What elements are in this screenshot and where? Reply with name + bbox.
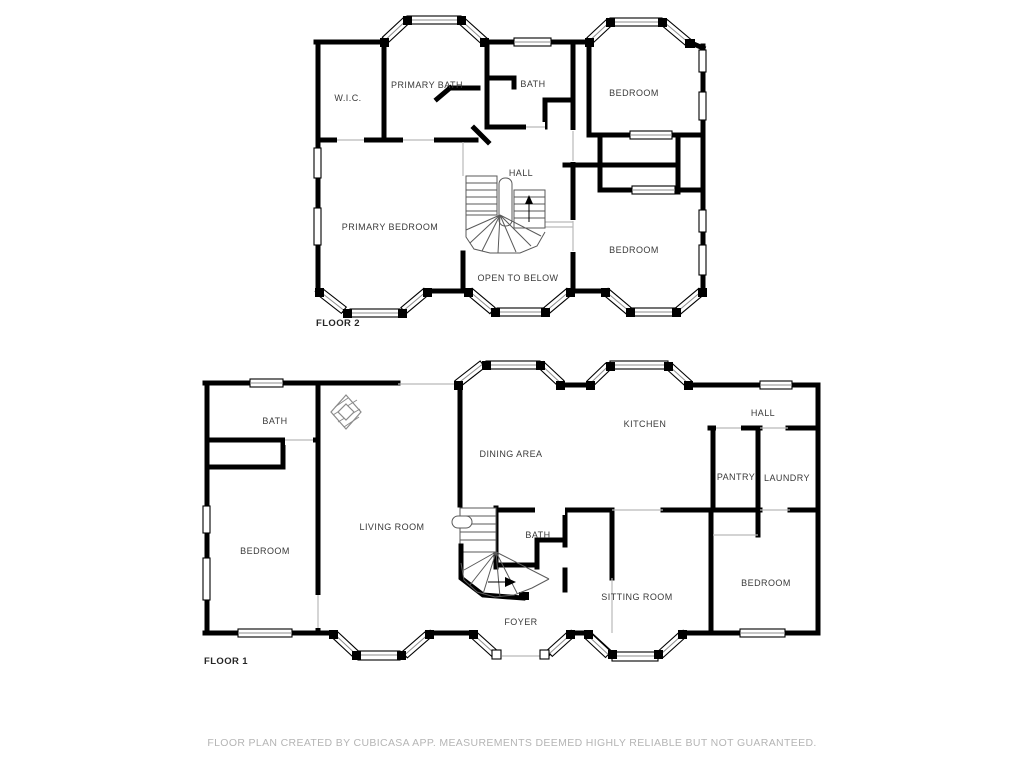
staircase-floor2 bbox=[466, 176, 545, 253]
room-label-foyer: FOYER bbox=[504, 617, 537, 627]
floor2-label: FLOOR 2 bbox=[316, 318, 360, 329]
room-label-open-to-below: OPEN TO BELOW bbox=[477, 273, 558, 283]
floor1-plan: BATH DINING AREA KITCHEN HALL PANTRY LAU… bbox=[203, 361, 818, 667]
room-label-primary-bedroom: PRIMARY BEDROOM bbox=[342, 222, 438, 232]
floor1-label: FLOOR 1 bbox=[204, 656, 248, 667]
room-label-bath-upper: BATH bbox=[262, 416, 287, 426]
room-label-dining-area: DINING AREA bbox=[480, 449, 543, 459]
room-label-sitting-room: SITTING ROOM bbox=[601, 592, 672, 602]
room-label-bath-center: BATH bbox=[525, 530, 550, 540]
stair-rail-island bbox=[499, 178, 512, 226]
floor2-plan: W.I.C. PRIMARY BATH BATH BEDROOM HALL PR… bbox=[314, 16, 707, 329]
room-label-living-room: LIVING ROOM bbox=[360, 522, 425, 532]
f2-wic-walls bbox=[316, 42, 384, 140]
f2-closet-hall-walls bbox=[565, 137, 703, 192]
room-label-bedroom-left: BEDROOM bbox=[240, 546, 290, 556]
fireplace-icon bbox=[331, 395, 361, 429]
floor-plan-drawing: W.I.C. PRIMARY BATH BATH BEDROOM HALL PR… bbox=[0, 0, 1024, 768]
room-label-bedroom-tr: BEDROOM bbox=[609, 88, 659, 98]
stair-newel bbox=[452, 516, 472, 528]
room-label-bedroom-br: BEDROOM bbox=[609, 245, 659, 255]
f1-kitchen-bottom-wall bbox=[495, 510, 612, 578]
f2-bath-fixture-wall bbox=[487, 78, 514, 87]
room-label-bath-f2: BATH bbox=[520, 79, 545, 89]
front-door-jamb-left bbox=[492, 650, 501, 659]
room-label-wic: W.I.C. bbox=[334, 93, 361, 103]
room-label-hall-f1: HALL bbox=[751, 408, 775, 418]
room-label-bedroom-right: BEDROOM bbox=[741, 578, 791, 588]
disclaimer-text: FLOOR PLAN CREATED BY CUBICASA APP. MEAS… bbox=[207, 737, 816, 749]
room-label-hall-f2: HALL bbox=[509, 168, 533, 178]
floor-plan-page: W.I.C. PRIMARY BATH BATH BEDROOM HALL PR… bbox=[0, 0, 1024, 768]
front-door-jamb-right bbox=[540, 650, 549, 659]
staircase-floor1 bbox=[452, 508, 549, 600]
room-label-pantry: PANTRY bbox=[717, 472, 755, 482]
room-label-kitchen: KITCHEN bbox=[624, 419, 667, 429]
room-label-primary-bath: PRIMARY BATH bbox=[391, 80, 463, 90]
stair-direction-arrow-floor1 bbox=[488, 577, 516, 587]
room-label-laundry: LAUNDRY bbox=[764, 473, 810, 483]
